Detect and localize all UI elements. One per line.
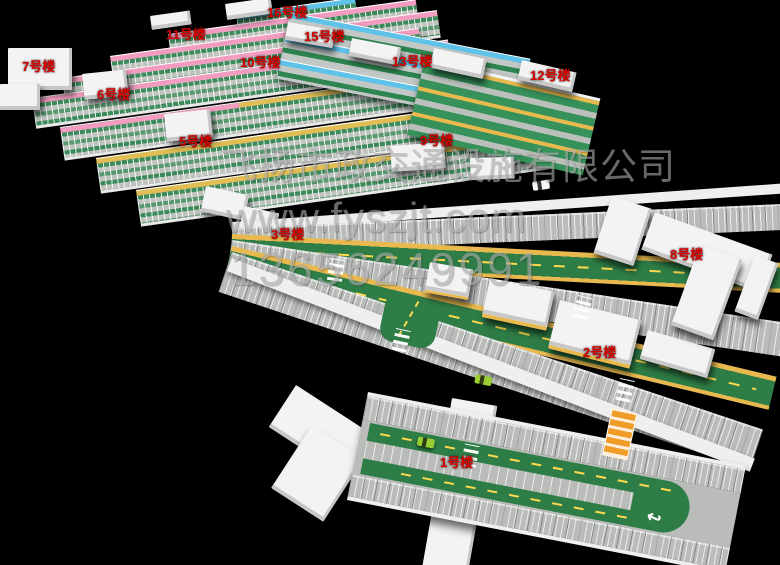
building-label-3: 3号楼: [271, 224, 304, 243]
building-label-15: 15号楼: [304, 26, 344, 45]
watermark-phone: 13656249991: [230, 242, 544, 296]
building-label-5: 5号楼: [179, 131, 212, 150]
building-label-6: 6号楼: [97, 84, 130, 103]
u-turn-arrow-icon: ↩: [643, 506, 664, 530]
building-label-11: 11号楼: [166, 24, 206, 43]
building-label-13: 13号楼: [392, 51, 432, 70]
building-label-10: 10号楼: [240, 52, 280, 71]
building-label-12: 12号楼: [530, 65, 570, 84]
stairwell-block: [0, 84, 40, 110]
building-label-2: 2号楼: [583, 342, 616, 361]
building-label-1: 1号楼: [440, 452, 473, 471]
building-label-16: 16号楼: [267, 2, 307, 21]
building-label-9: 9号楼: [420, 130, 453, 149]
building-label-8: 8号楼: [670, 244, 703, 263]
building-label-7: 7号楼: [22, 56, 55, 75]
underground-complex-3d-map: ↩ 飞扬市政交通设施有限公司 www.fyszjt.com 1365624999…: [0, 0, 780, 565]
